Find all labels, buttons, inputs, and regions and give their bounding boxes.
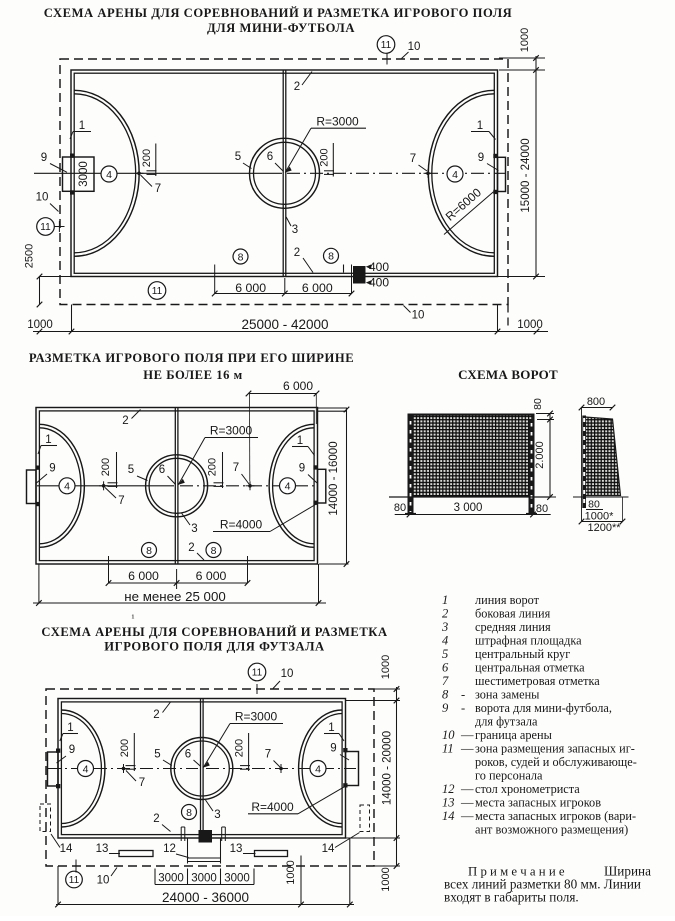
svg-text:1: 1 — [328, 722, 334, 734]
svg-text:—: — — [460, 728, 474, 742]
svg-text:1000: 1000 — [519, 28, 531, 52]
svg-text:3000: 3000 — [191, 873, 217, 885]
svg-text:4: 4 — [285, 481, 291, 493]
svg-text:5: 5 — [128, 464, 134, 476]
svg-text:24000 - 36000: 24000 - 36000 — [162, 890, 249, 905]
svg-text:12: 12 — [442, 782, 455, 796]
svg-text:го персонала: го персонала — [475, 769, 543, 783]
svg-text:3000: 3000 — [224, 873, 250, 885]
svg-text:R=3000: R=3000 — [316, 115, 359, 129]
svg-text:3: 3 — [292, 224, 298, 236]
svg-text:входят в габариты поля.: входят в габариты поля. — [444, 890, 579, 905]
svg-text:6 000: 6 000 — [235, 281, 266, 295]
svg-text:9: 9 — [69, 744, 75, 756]
svg-text:4: 4 — [106, 169, 112, 181]
svg-text:11: 11 — [69, 875, 80, 886]
svg-text:25000 - 42000: 25000 - 42000 — [241, 317, 328, 332]
svg-text:1: 1 — [477, 120, 483, 132]
svg-text:2: 2 — [153, 709, 159, 721]
svg-text:1: 1 — [79, 120, 85, 132]
svg-text:штрафная площадка: штрафная площадка — [475, 634, 582, 648]
svg-text:14: 14 — [442, 809, 455, 823]
svg-text:5: 5 — [442, 647, 448, 661]
svg-text:4: 4 — [83, 763, 89, 775]
svg-text:200: 200 — [207, 458, 219, 476]
svg-text:10: 10 — [442, 728, 455, 742]
svg-text:4: 4 — [64, 481, 70, 493]
svg-text:РАЗМЕТКА ИГРОВОГО ПОЛЯ ПРИ ЕГО: РАЗМЕТКА ИГРОВОГО ПОЛЯ ПРИ ЕГО ШИРИНЕ — [29, 351, 354, 365]
svg-text:200: 200 — [119, 739, 131, 757]
svg-text:10: 10 — [97, 875, 110, 887]
svg-text:7: 7 — [265, 749, 271, 761]
svg-text:2.000: 2.000 — [534, 441, 546, 469]
svg-text:3 000: 3 000 — [454, 502, 483, 514]
svg-text:боковая линия: боковая линия — [475, 607, 551, 621]
svg-text:200: 200 — [319, 148, 331, 166]
svg-text:10: 10 — [281, 668, 294, 680]
svg-text:9: 9 — [478, 152, 484, 164]
svg-text:4: 4 — [452, 169, 458, 181]
svg-text:—: — — [460, 796, 474, 810]
svg-text:5: 5 — [235, 151, 241, 163]
svg-text:ворота для мини-футбола,: ворота для мини-футбола, — [475, 701, 612, 715]
svg-text:4: 4 — [315, 763, 321, 775]
svg-text:6 000: 6 000 — [196, 569, 227, 583]
svg-text:8: 8 — [146, 545, 152, 557]
svg-text:8: 8 — [211, 545, 217, 557]
svg-text:10: 10 — [408, 41, 421, 53]
svg-text:13: 13 — [442, 796, 455, 810]
svg-text:2500: 2500 — [24, 244, 36, 268]
svg-text:—: — — [460, 742, 474, 756]
svg-text:15000 - 24000: 15000 - 24000 — [520, 138, 532, 212]
svg-text:R=4000: R=4000 — [251, 800, 294, 814]
svg-text:2: 2 — [122, 415, 128, 427]
svg-text:1: 1 — [67, 722, 73, 734]
svg-text:11: 11 — [442, 742, 454, 756]
svg-text:8: 8 — [328, 251, 334, 263]
svg-text:R=3000: R=3000 — [235, 710, 278, 724]
svg-text:7: 7 — [155, 183, 161, 195]
svg-text:-: - — [461, 688, 465, 702]
svg-text:6: 6 — [185, 749, 191, 761]
svg-text:1000: 1000 — [27, 319, 53, 331]
svg-text:центральная отметка: центральная отметка — [475, 661, 585, 675]
svg-text:14: 14 — [60, 843, 73, 855]
svg-text:граница арены: граница арены — [475, 728, 552, 742]
svg-text:11: 11 — [152, 286, 163, 297]
svg-text:6 000: 6 000 — [128, 569, 159, 583]
svg-text:6: 6 — [159, 464, 165, 476]
svg-text:1: 1 — [442, 593, 448, 607]
svg-text:3: 3 — [191, 523, 197, 535]
svg-text:ант возможного размещения): ант возможного размещения) — [475, 823, 628, 837]
svg-text:6: 6 — [267, 151, 273, 163]
svg-text:11: 11 — [40, 222, 51, 233]
svg-text:2: 2 — [188, 542, 194, 554]
svg-text:200: 200 — [100, 458, 112, 476]
svg-text:ИГРОВОГО ПОЛЯ ДЛЯ ФУТЗАЛА: ИГРОВОГО ПОЛЯ ДЛЯ ФУТЗАЛА — [104, 640, 324, 654]
svg-text:1000: 1000 — [285, 860, 297, 884]
svg-text:80: 80 — [536, 503, 548, 515]
svg-text:80: 80 — [394, 502, 406, 514]
svg-text:5: 5 — [154, 749, 160, 761]
svg-text:6 000: 6 000 — [283, 379, 313, 393]
svg-text:шестиметровая отметка: шестиметровая отметка — [475, 674, 600, 688]
svg-text:—: — — [460, 782, 474, 796]
svg-text:80: 80 — [588, 499, 600, 511]
svg-text:линия ворот: линия ворот — [475, 593, 540, 607]
svg-text:средняя линия: средняя линия — [475, 620, 551, 634]
svg-text:1000: 1000 — [380, 867, 392, 891]
svg-text:R=4000: R=4000 — [220, 518, 263, 532]
svg-text:4: 4 — [442, 634, 448, 648]
svg-text:1000*: 1000* — [585, 511, 614, 523]
svg-text:14000 - 20000: 14000 - 20000 — [382, 731, 394, 805]
svg-text:3: 3 — [441, 620, 448, 634]
svg-text:зона замены: зона замены — [475, 688, 539, 702]
svg-text:13: 13 — [96, 843, 109, 855]
svg-text:11: 11 — [381, 40, 392, 51]
svg-text:9: 9 — [49, 463, 55, 475]
svg-text:8: 8 — [186, 807, 192, 819]
svg-text:1200**: 1200** — [587, 522, 621, 534]
svg-text:7: 7 — [118, 495, 124, 507]
svg-text:СХЕМА ВОРОТ: СХЕМА ВОРОТ — [458, 367, 558, 382]
svg-text:стол хронометриста: стол хронометриста — [475, 782, 580, 796]
svg-text:роков, судей и обслуживающе-: роков, судей и обслуживающе- — [475, 755, 637, 769]
svg-text:3000: 3000 — [158, 873, 184, 885]
svg-text:8: 8 — [238, 251, 244, 263]
svg-text:не менее 25 000: не менее 25 000 — [124, 589, 225, 604]
svg-text:2: 2 — [153, 813, 159, 825]
svg-text:8: 8 — [442, 688, 449, 702]
svg-text:200: 200 — [234, 739, 246, 757]
svg-text:—: — — [460, 809, 474, 823]
svg-text:ДЛЯ МИНИ-ФУТБОЛА: ДЛЯ МИНИ-ФУТБОЛА — [207, 21, 355, 35]
svg-text:9: 9 — [299, 463, 305, 475]
svg-text:14: 14 — [322, 843, 335, 855]
svg-text:400: 400 — [369, 276, 389, 290]
svg-text:2: 2 — [294, 81, 300, 93]
svg-text:12: 12 — [163, 843, 176, 855]
svg-text:НЕ БОЛЕЕ 16 м: НЕ БОЛЕЕ 16 м — [143, 368, 243, 382]
svg-text:СХЕМА АРЕНЫ ДЛЯ СОРЕВНОВАНИЙ И: СХЕМА АРЕНЫ ДЛЯ СОРЕВНОВАНИЙ И РАЗМЕТКА — [41, 625, 387, 639]
svg-text:10: 10 — [412, 310, 425, 322]
svg-text:для футзала: для футзала — [475, 715, 538, 729]
svg-text:3000: 3000 — [78, 161, 90, 187]
svg-text:9: 9 — [442, 701, 449, 715]
svg-text:СХЕМА АРЕНЫ ДЛЯ СОРЕВНОВАНИЙ И: СХЕМА АРЕНЫ ДЛЯ СОРЕВНОВАНИЙ И РАЗМЕТКА … — [44, 6, 513, 20]
svg-text:R=3000: R=3000 — [210, 424, 253, 438]
svg-text:400: 400 — [369, 260, 389, 274]
svg-text:13: 13 — [230, 843, 243, 855]
svg-text:6: 6 — [442, 661, 449, 675]
svg-text:центральный круг: центральный круг — [475, 647, 570, 661]
svg-text:200: 200 — [141, 149, 153, 167]
svg-text:7: 7 — [139, 777, 145, 789]
svg-text:места запасных игроков (вари-: места запасных игроков (вари- — [475, 809, 636, 823]
svg-text:2: 2 — [442, 607, 448, 621]
svg-text:800: 800 — [587, 396, 605, 408]
svg-text:1: 1 — [45, 434, 51, 446]
svg-text:7: 7 — [233, 462, 239, 474]
svg-text:зона размещения запасных иг-: зона размещения запасных иг- — [475, 742, 635, 756]
svg-text:9: 9 — [330, 743, 336, 755]
svg-text:7: 7 — [442, 674, 449, 688]
svg-text:9: 9 — [41, 152, 47, 164]
svg-text:1: 1 — [297, 435, 303, 447]
svg-text:-: - — [461, 701, 465, 715]
svg-text:80: 80 — [532, 398, 544, 410]
svg-text:6 000: 6 000 — [302, 281, 333, 295]
svg-text:10: 10 — [36, 192, 49, 204]
svg-text:7: 7 — [410, 153, 416, 165]
svg-text:11: 11 — [252, 668, 263, 679]
svg-text:¹: ¹ — [132, 613, 135, 624]
svg-text:3: 3 — [214, 809, 220, 821]
svg-text:места запасных игроков: места запасных игроков — [475, 796, 601, 810]
svg-text:2: 2 — [294, 247, 300, 259]
svg-text:14000 - 16000: 14000 - 16000 — [328, 441, 340, 515]
svg-text:1000: 1000 — [380, 655, 392, 679]
